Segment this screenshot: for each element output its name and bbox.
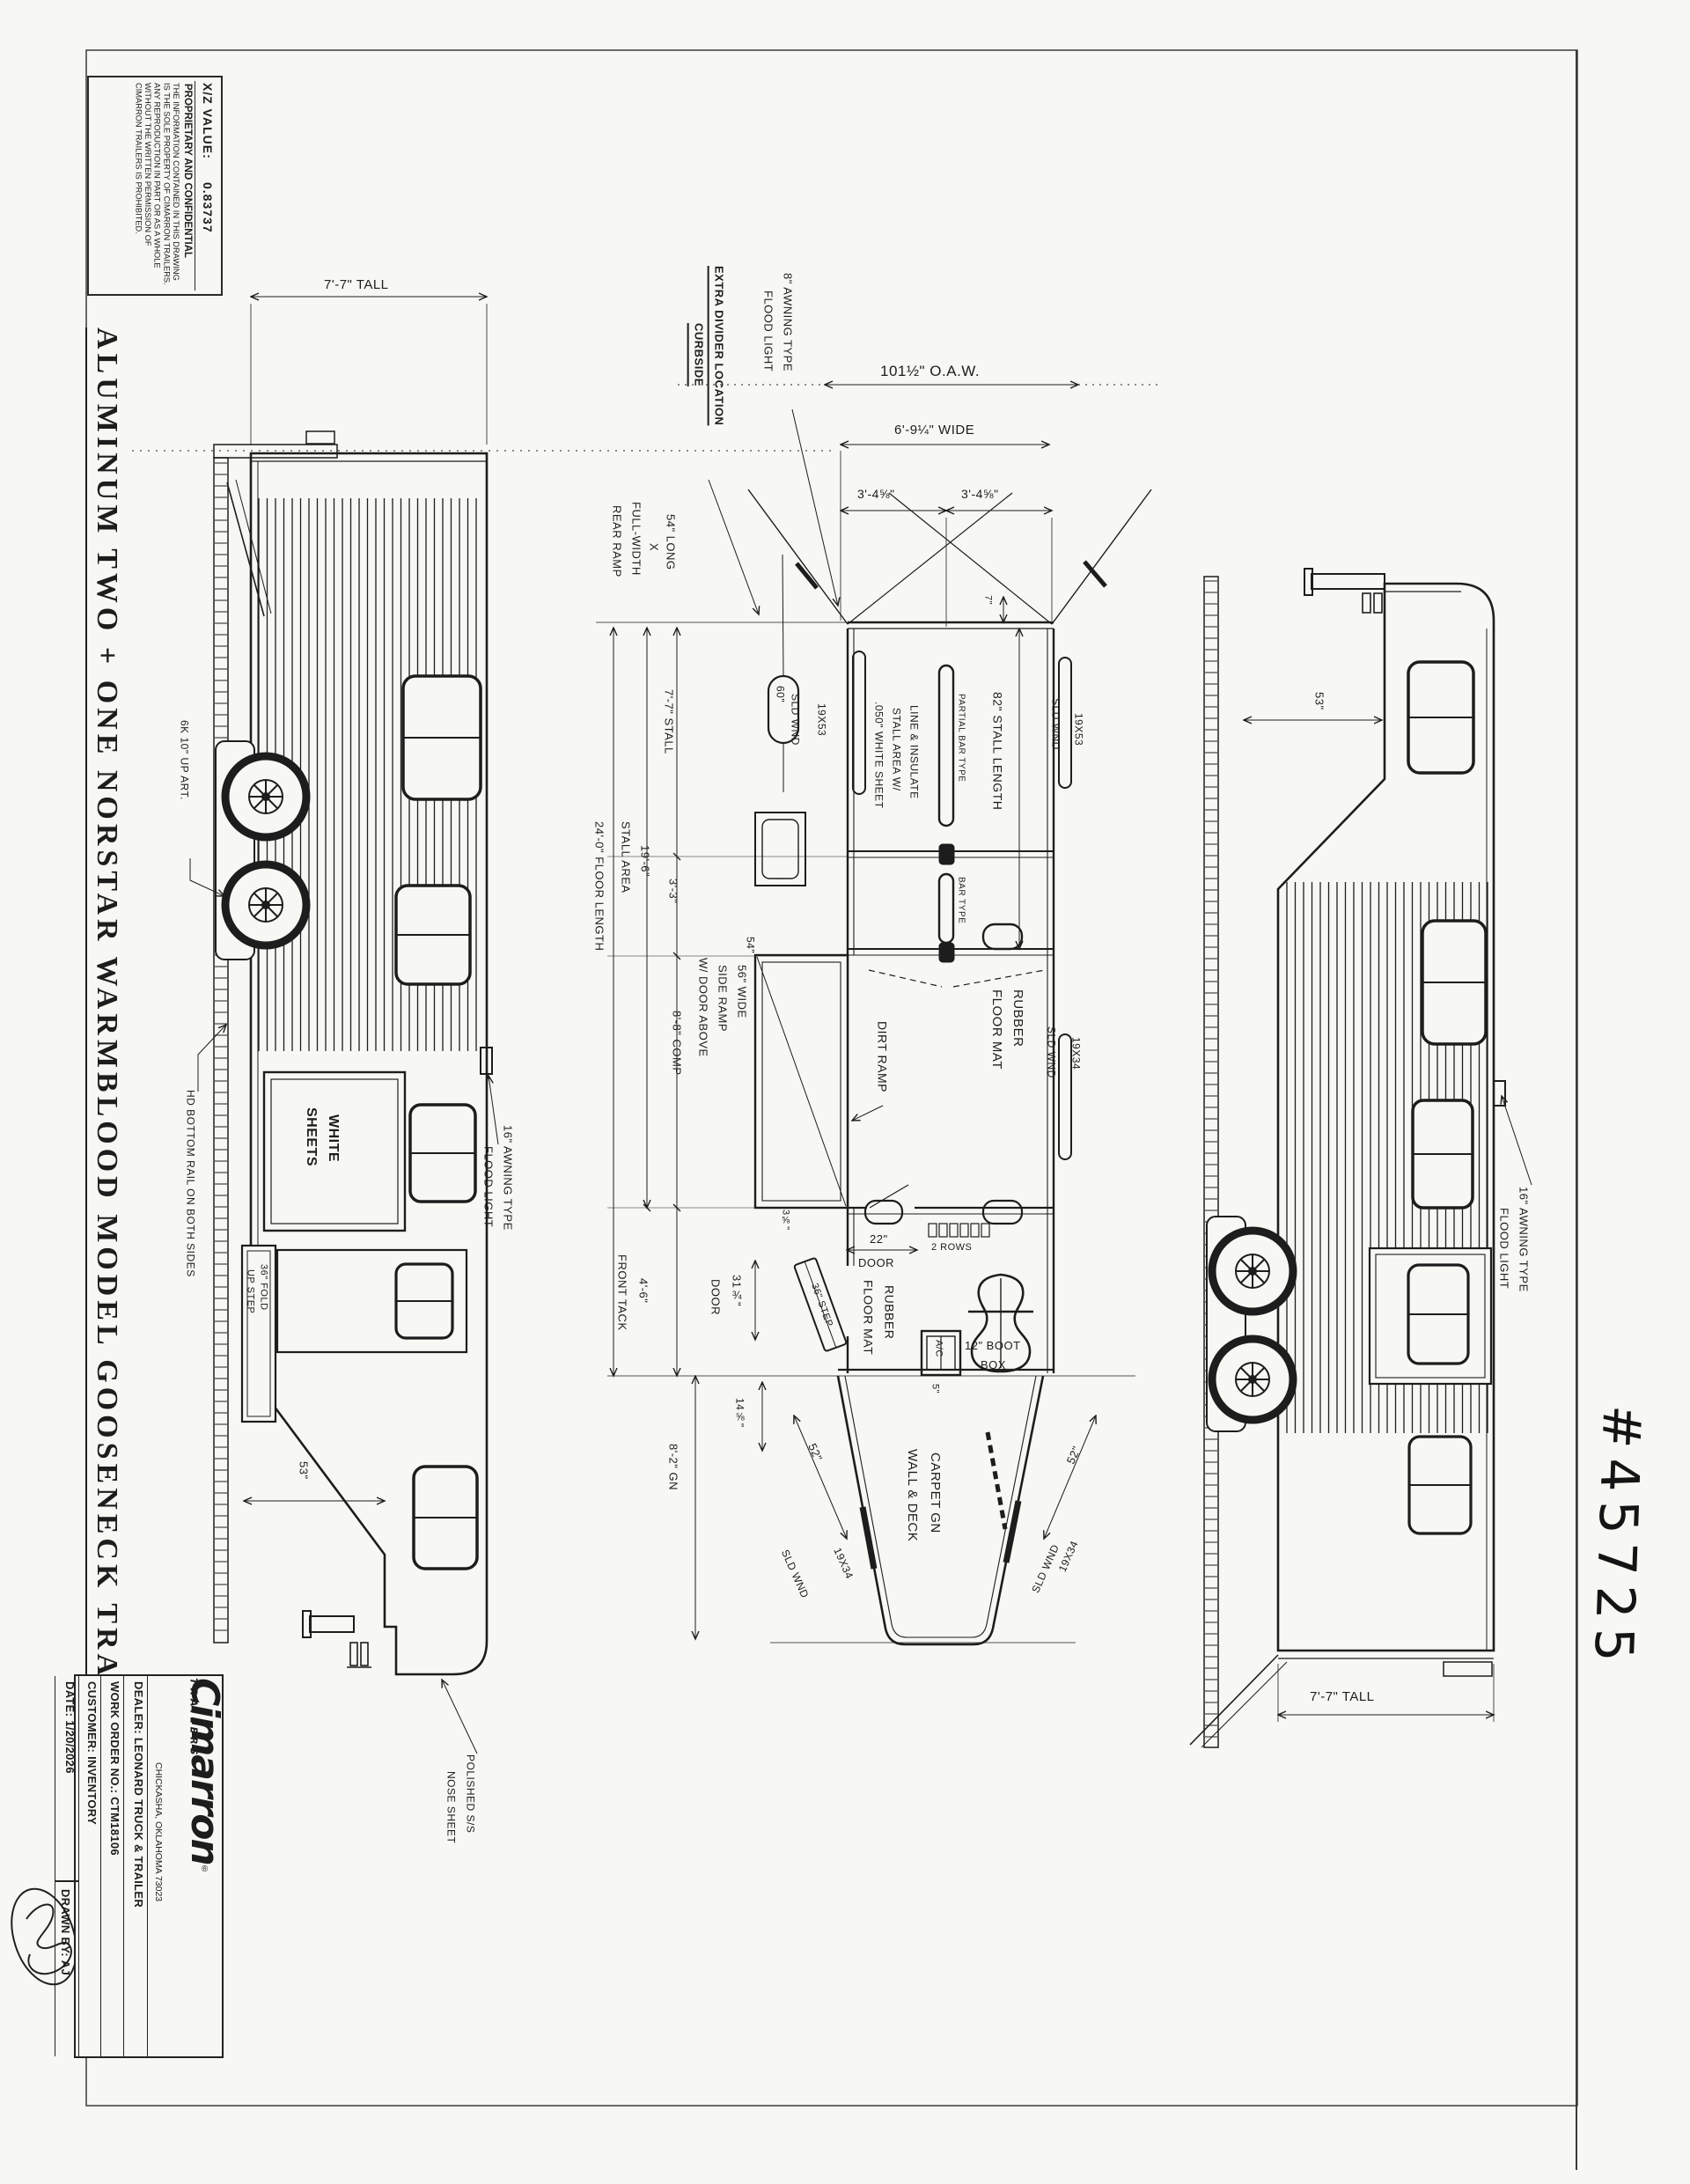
label-floor-length: 24'-0" FLOOR LENGTH — [593, 821, 606, 951]
label-nose-1: POLISHED S/S — [465, 1754, 476, 1833]
label-sixty: 60" — [775, 686, 786, 702]
xz-value: 0.83737 — [201, 182, 215, 233]
label-stall77: 7'-7" STALL — [663, 689, 675, 754]
scanned-blueprint-page: X/Z VALUE:0.83737 PROPRIETARY AND CONFID… — [0, 0, 1690, 2184]
label-dim1458: 14⅝" — [734, 1398, 746, 1428]
logo-registered-mark: ® — [200, 1864, 209, 1874]
label-oaw: 101½" O.A.W. — [880, 364, 980, 379]
label-tall-left: 7'-7" TALL — [324, 278, 389, 292]
drawing-title: ALUMINUM TWO + ONE NORSTAR WARMBLOOD MOD… — [85, 327, 123, 1770]
xz-value-row: X/Z VALUE:0.83737 — [195, 81, 218, 290]
label-w34-2: 3'-4⅝" — [961, 488, 999, 501]
label-rows2: 2 ROWS — [931, 1243, 972, 1254]
label-w34-1: 3'-4⅝" — [857, 488, 895, 501]
date-row: DATE: 1/20/2026 DRAWN BY: AJ — [55, 1676, 78, 2056]
label-tall-right: 7'-7" TALL — [1310, 1690, 1375, 1704]
label-gn53-right: 53" — [1313, 692, 1326, 710]
label-dim5: 5" — [929, 1384, 940, 1393]
label-flood-right-1: 16" AWNING TYPE — [1517, 1187, 1530, 1292]
label-dim196: 19'-6" — [639, 845, 651, 877]
label-mat1-2: FLOOR MAT — [989, 989, 1003, 1070]
label-sldwnd-rr: SLD WND — [1050, 698, 1062, 750]
label-mat2-1: RUBBER — [883, 1285, 896, 1339]
label-ramp-3: W/ DOOR ABOVE — [697, 958, 709, 1057]
dealer-row: DEALER: LEONARD TRUCK & TRAILER — [123, 1676, 147, 2056]
label-door22-2: DOOR — [858, 1257, 894, 1269]
confidential-body: THE INFORMATION CONTAINED IN THIS DRAWIN… — [134, 81, 180, 290]
proprietary-info-box: X/Z VALUE:0.83737 PROPRIETARY AND CONFID… — [87, 76, 223, 296]
label-flood-left-2: FLOOD LIGHT — [482, 1146, 495, 1227]
label-white-2: SHEETS — [303, 1107, 318, 1166]
confidential-title: PROPRIETARY AND CONFIDENTIAL — [180, 81, 195, 290]
drawn-by-cell: DRAWN BY: AJ — [59, 1889, 72, 1975]
logo-subtext: TRAILERS — [187, 1678, 199, 2055]
label-line-2: STALL AREA W/ — [891, 708, 902, 791]
label-nose-2: NOSE SHEET — [445, 1771, 457, 1843]
label-comp88: 8'-8" COMP — [671, 1011, 683, 1076]
label-step-1: 36" FOLD — [258, 1264, 268, 1311]
handwritten-sheet-number: #45725 — [1582, 1403, 1652, 1671]
label-dim54: 54" — [745, 937, 756, 953]
label-step-2: UP STEP — [245, 1269, 255, 1313]
dealer-address: CHICKASHA, OKLAHOMA 73023 — [147, 1676, 165, 2056]
label-awn8-2: FLOOD LIGHT — [762, 290, 775, 371]
label-door22-1: 22" — [870, 1233, 888, 1246]
label-ramp-2: SIDE RAMP — [716, 965, 729, 1032]
label-carpet-2: WALL & DECK — [905, 1449, 919, 1541]
label-dim46: 4'-6" — [637, 1278, 650, 1303]
label-line-1: LINE & INSULATE — [908, 705, 920, 799]
label-midwin-2: 19X34 — [1070, 1037, 1082, 1070]
label-w19x53-l: 19X53 — [816, 703, 827, 736]
label-stall-area: STALL AREA — [620, 821, 632, 893]
label-bar-type: BAR TYPE — [956, 877, 966, 923]
label-divider-1: EXTRA DIVIDER LOCATION — [713, 266, 725, 425]
label-wide: 6'-9¼" WIDE — [894, 423, 974, 438]
customer-row: CUSTOMER: INVENTORY — [78, 1676, 100, 2056]
label-awn8-1: 8" AWNING TYPE — [782, 273, 794, 371]
label-mat2-2: FLOOR MAT — [862, 1280, 875, 1355]
label-line-3: .050" WHITE SHEET — [873, 702, 885, 808]
xz-label: X/Z VALUE: — [201, 83, 215, 159]
street-side-view — [132, 297, 836, 1754]
label-flood-right-2: FLOOD LIGHT — [1498, 1208, 1510, 1289]
label-door3134-2: DOOR — [709, 1279, 722, 1315]
label-axle-note: 6K 10" UP ART. — [179, 720, 190, 800]
label-mat1-1: RUBBER — [1010, 989, 1025, 1048]
label-rear-ramp-4: X — [648, 543, 660, 551]
label-rear-ramp-1: FULL-WIDTH — [630, 502, 643, 576]
label-dim358: 3⅝" — [780, 1210, 790, 1231]
label-carpet-1: CARPET GN — [928, 1452, 942, 1533]
drawing-linework — [0, 0, 1690, 2184]
label-partial-bar: PARTIAL BAR TYPE — [956, 694, 966, 782]
label-front-tack: FRONT TACK — [616, 1254, 628, 1331]
label-ac: A/C — [933, 1340, 944, 1357]
cell-divider — [55, 1880, 78, 1882]
label-bottom-rail-note: HD BOTTOM RAIL ON BOTH SIDES — [185, 1090, 196, 1277]
label-seven: 7" — [982, 595, 993, 605]
cimarron-logo: Cimarron® TRAILERS — [165, 1676, 222, 2056]
label-stall-length: 82" STALL LENGTH — [991, 692, 1004, 810]
label-divider-2: CURBSIDE — [693, 323, 705, 386]
label-rear-ramp-3: 54" LONG — [665, 514, 677, 570]
title-block: Cimarron® TRAILERS CHICKASHA, OKLAHOMA 7… — [74, 1674, 224, 2058]
label-sldwnd-rl: SLD WND — [790, 694, 801, 746]
label-boot-1: 12" BOOT — [965, 1340, 1021, 1352]
label-w19x53-r: 19X53 — [1073, 713, 1084, 746]
label-rear-ramp-2: REAR RAMP — [611, 505, 623, 577]
label-dirt-ramp: DIRT RAMP — [876, 1021, 889, 1092]
label-gn82: 8'-2" GN — [667, 1444, 680, 1490]
label-gn53-left: 53" — [298, 1461, 310, 1480]
label-boot-2: BOX — [981, 1359, 1006, 1371]
label-flood-left-1: 16" AWNING TYPE — [502, 1125, 514, 1231]
label-ramp-1: 56" WIDE — [736, 965, 748, 1018]
label-white-1: WHITE — [325, 1114, 340, 1162]
label-midwin-1: SLD WND — [1046, 1026, 1057, 1078]
label-door3134-1: 31¾" — [731, 1275, 743, 1306]
curb-side-view — [1190, 569, 1532, 1747]
label-dim33: 3'-3" — [667, 879, 680, 903]
work-order-row: WORK ORDER NO.: CTM18106 — [100, 1676, 123, 2056]
